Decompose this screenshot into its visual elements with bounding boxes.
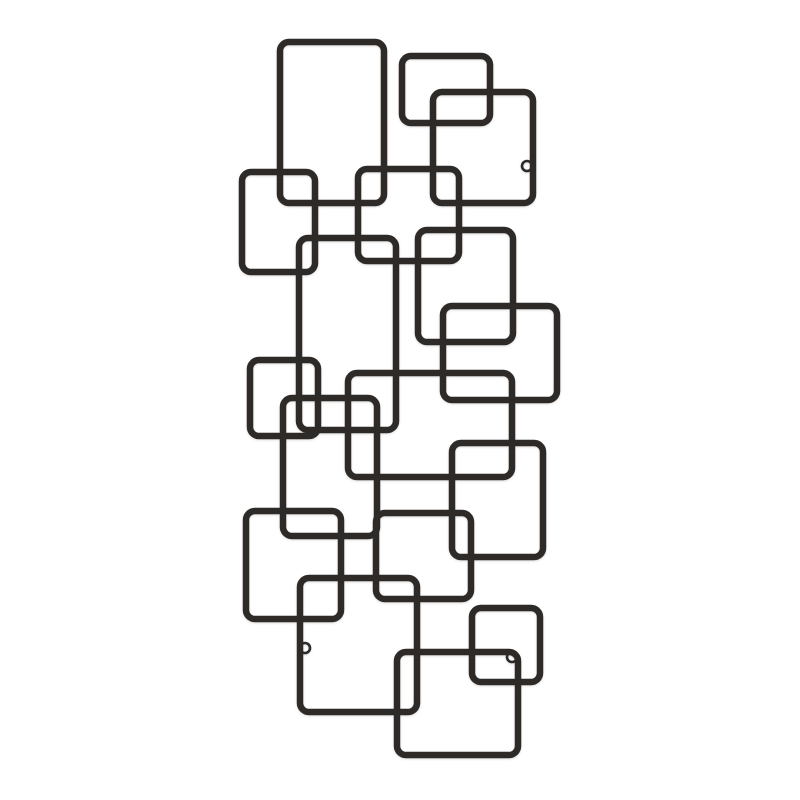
wire-squares-group [242, 42, 557, 755]
wire-square-mid-right-wide [443, 306, 557, 400]
wire-square-mid-right-upper [418, 230, 513, 342]
wire-square-tall-top [280, 42, 384, 203]
wire-square-top-right [433, 92, 533, 203]
product-photo [0, 0, 800, 800]
wire-square-bottom-small [472, 608, 540, 682]
wall-art-svg [0, 0, 800, 800]
wire-square-right-lower [452, 443, 543, 557]
wire-rect-center-wide [348, 373, 512, 477]
wire-square-upper-center [358, 169, 459, 261]
wire-square-lower-left-big [246, 511, 341, 619]
